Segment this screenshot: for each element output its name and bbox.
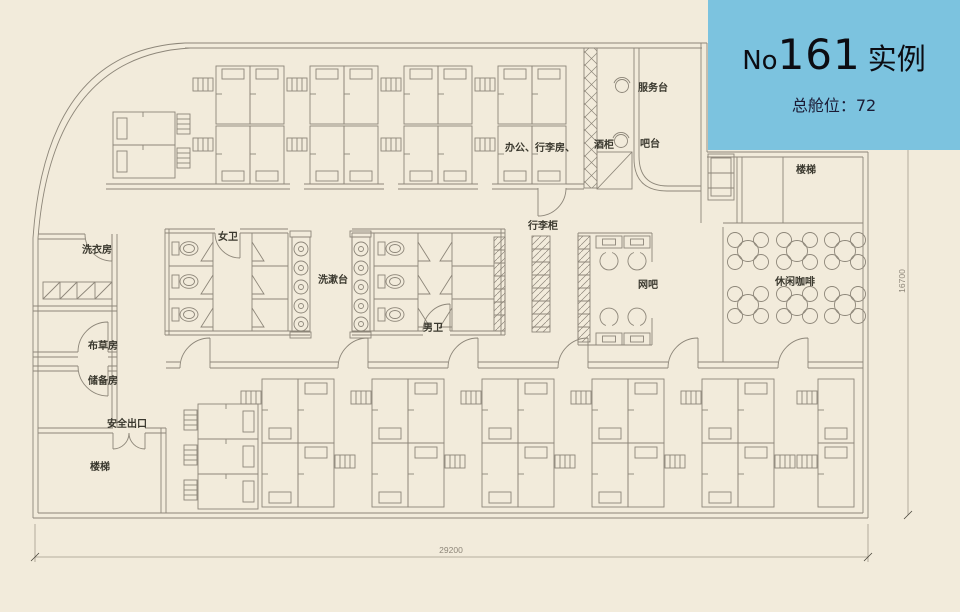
ladder-icon (381, 78, 401, 91)
ladder-icon (184, 410, 197, 430)
ladder-icon (555, 455, 575, 468)
capsule-unit (262, 379, 298, 443)
capsule-unit (198, 474, 258, 509)
capsule-unit (113, 145, 175, 178)
door-arc (558, 338, 588, 368)
sink-icon (294, 261, 308, 275)
dimension-width-label: 29200 (439, 545, 463, 555)
sink-icon (354, 242, 368, 256)
label-linen-room: 布草房 (88, 339, 118, 352)
mens-toilet-block (350, 229, 505, 338)
capsule-unit (628, 379, 664, 443)
ladder-icon (193, 138, 213, 151)
womens-toilet-block (165, 229, 311, 338)
door-arc (113, 433, 129, 449)
label-service-desk: 服务台 (638, 81, 668, 94)
bottom-capsule-rows (184, 379, 854, 509)
ladder-icon (335, 455, 355, 468)
reception-area (584, 48, 701, 191)
capsule-unit (532, 66, 566, 124)
toilet-icon (378, 242, 404, 256)
sink-icon (294, 242, 308, 256)
label-leisure-coffee: 休闲咖啡 (774, 275, 815, 288)
capsule-unit (250, 66, 284, 124)
ladder-icon (184, 445, 197, 465)
label-wash-area: 洗漱台 (318, 273, 348, 286)
ladder-icon (184, 480, 197, 500)
capsule-unit (404, 126, 438, 184)
label-mens-toilet: 男卫 (423, 322, 443, 334)
label-wine-cabinet: 酒柜 (594, 138, 614, 151)
label-stairs-bottom: 楼梯 (90, 460, 110, 473)
ladder-icon (177, 148, 190, 168)
door-arc (338, 338, 368, 368)
floorplan-page: 29200 16700 服务台 吧台 酒柜 办公、行李房、 行李柜 女卫 洗漱台… (0, 0, 960, 612)
label-office-luggage: 办公、行李房、 (505, 141, 575, 154)
banner-suffix: 实例 (868, 45, 926, 74)
desk-icon (624, 333, 650, 345)
capsule-unit (408, 379, 444, 443)
capsule-unit (818, 379, 854, 443)
toilet-icon (378, 308, 404, 322)
banner-no-prefix: No (742, 48, 777, 74)
door-arc (129, 433, 145, 449)
capsule-unit (298, 443, 334, 507)
toilet-icon (172, 275, 198, 289)
chair-icon (600, 308, 618, 325)
label-bar: 吧台 (640, 137, 660, 150)
ladder-icon (665, 455, 685, 468)
chair-icon (628, 308, 646, 325)
capsule-unit (702, 443, 738, 507)
desk-icon (596, 236, 622, 248)
door-arc (448, 338, 478, 368)
top-capsule-row (106, 66, 584, 216)
toilet-icon (378, 275, 404, 289)
capsule-unit (298, 379, 334, 443)
label-emergency-exit: 安全出口 (107, 417, 147, 430)
banner-title: No 161 实例 (742, 34, 926, 76)
door-arc (668, 338, 698, 368)
room-labels: 服务台 吧台 酒柜 办公、行李房、 行李柜 女卫 洗漱台 男卫 网吧 休闲咖啡 … (82, 81, 816, 473)
table-with-chairs (728, 287, 769, 324)
ladder-icon (287, 138, 307, 151)
label-internet-cafe: 网吧 (638, 279, 658, 291)
ladder-icon (571, 391, 591, 404)
ladder-icon (287, 78, 307, 91)
toilet-icon (172, 242, 198, 256)
sink-icon (294, 317, 308, 331)
ladder-icon (475, 138, 495, 151)
label-luggage-cabinet: 行李柜 (527, 219, 558, 232)
capsule-unit (482, 443, 518, 507)
stool-icon (613, 132, 629, 147)
banner-number: 161 (778, 34, 861, 76)
corridor-doors (166, 338, 863, 368)
capsule-unit (310, 66, 344, 124)
ladder-icon (381, 138, 401, 151)
stool-icon (614, 77, 630, 92)
capsule-unit (404, 66, 438, 124)
luggage-cabinets (532, 236, 550, 332)
ladder-icon (445, 455, 465, 468)
capsule-unit (498, 66, 532, 124)
ladder-icon (351, 391, 371, 404)
sink-icon (354, 317, 368, 331)
table-with-chairs (777, 287, 818, 324)
capsule-unit (438, 126, 472, 184)
capsule-unit (372, 443, 408, 507)
ladder-icon (681, 391, 701, 404)
desk-icon (624, 236, 650, 248)
door-arc (538, 188, 566, 216)
capsule-unit (518, 379, 554, 443)
label-storage-room: 储备房 (87, 374, 118, 387)
table-with-chairs (825, 233, 866, 270)
capsule-unit (310, 126, 344, 184)
capsule-unit (198, 439, 258, 474)
sink-icon (294, 299, 308, 313)
capsule-unit (532, 126, 566, 184)
label-stairs-top: 楼梯 (796, 163, 816, 176)
capsule-unit (262, 443, 298, 507)
capsule-unit (344, 126, 378, 184)
ladder-icon (775, 455, 795, 468)
info-banner: No 161 实例 总舱位：72 (708, 0, 960, 150)
sink-icon (354, 299, 368, 313)
capsule-unit (518, 443, 554, 507)
ladder-icon (241, 391, 261, 404)
capsule-unit (482, 379, 518, 443)
table-with-chairs (825, 287, 866, 324)
ladder-icon (461, 391, 481, 404)
ladder-icon (193, 78, 213, 91)
capsule-unit (628, 443, 664, 507)
label-womens-toilet: 女卫 (218, 230, 238, 243)
ladder-icon (177, 114, 190, 134)
door-arc (180, 338, 210, 368)
capsule-unit (738, 379, 774, 443)
capsule-unit (198, 404, 258, 439)
capsule-unit (438, 66, 472, 124)
sink-icon (354, 261, 368, 275)
chair-icon (628, 253, 646, 270)
banner-capacity: 总舱位：72 (792, 92, 876, 116)
stairs-room-top (708, 154, 863, 223)
dimension-height-label: 16700 (897, 269, 907, 293)
capsule-unit (592, 443, 628, 507)
table-with-chairs (728, 233, 769, 270)
laundry-shelf (43, 282, 112, 299)
capsule-unit (372, 379, 408, 443)
table-with-chairs (777, 233, 818, 270)
toilet-icon (172, 308, 198, 322)
capsule-unit (702, 379, 738, 443)
capsule-unit (818, 443, 854, 507)
label-laundry: 洗衣房 (82, 243, 112, 256)
capsule-unit (344, 66, 378, 124)
cabinet (708, 154, 734, 200)
capsule-unit (408, 443, 444, 507)
capsule-unit (216, 126, 250, 184)
capsule-unit (738, 443, 774, 507)
capsule-unit (592, 379, 628, 443)
ladder-icon (797, 391, 817, 404)
capsule-unit (113, 112, 175, 145)
capsule-unit (498, 126, 532, 184)
sink-icon (294, 280, 308, 294)
capsule-unit (216, 66, 250, 124)
ladder-icon (475, 78, 495, 91)
chair-icon (600, 253, 618, 270)
sink-icon (354, 280, 368, 294)
ladder-icon (797, 455, 817, 468)
desk-icon (596, 333, 622, 345)
door-arc (778, 338, 808, 368)
capsule-unit (250, 126, 284, 184)
